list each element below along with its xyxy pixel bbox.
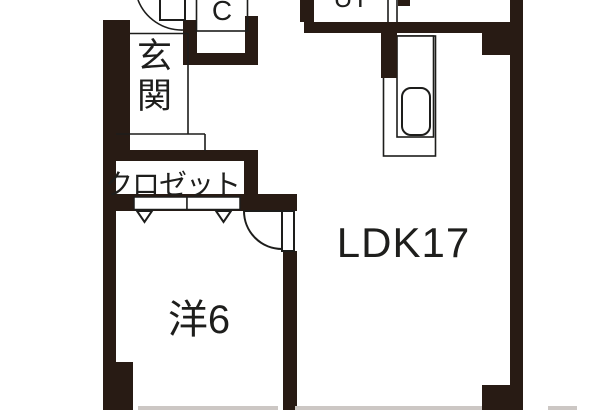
closet-door-triangle-right-icon (216, 211, 231, 222)
window-sill-right (548, 406, 577, 410)
top-wall (304, 22, 523, 33)
bathtub-icon (402, 88, 430, 135)
utility-left-wall (300, 0, 314, 22)
wall-left-upper (103, 20, 130, 150)
window-sill-middle (295, 406, 482, 410)
pillar-top-right (482, 33, 510, 55)
pillar-bottom-right (482, 385, 510, 410)
bath-wall-strip (381, 33, 397, 78)
room-divider-wall (283, 251, 297, 410)
c-closet-label: C (196, 0, 248, 27)
genkan-label: 玄関 (134, 37, 169, 117)
western-room-label: 洋6 (115, 287, 283, 345)
door-leaf (282, 211, 294, 251)
wall-left-of-c-closet (183, 20, 197, 53)
utility-label: UT (314, 0, 388, 14)
entrance-door-leaf (160, 0, 185, 20)
closet-label: クロゼット (101, 163, 244, 203)
closet-door-triangle-left-icon (137, 211, 152, 222)
floor-plan-drawing (0, 0, 600, 410)
wall-below-c-closet (183, 53, 258, 65)
western-room-door (244, 211, 294, 251)
closet-right-wall (244, 150, 258, 195)
wall-right (510, 0, 523, 410)
window-sill-left (138, 406, 278, 410)
door-swing-arc-icon (244, 211, 282, 249)
floor-plan: 玄関 C UT クロゼット 洋6 LDK17 (0, 0, 600, 410)
wall-stub-top (398, 0, 410, 6)
entrance-door (138, 0, 185, 30)
closet-top-wall (103, 150, 258, 161)
pillar-bottom-left (103, 362, 133, 410)
ldk-label: LDK17 (297, 219, 510, 267)
